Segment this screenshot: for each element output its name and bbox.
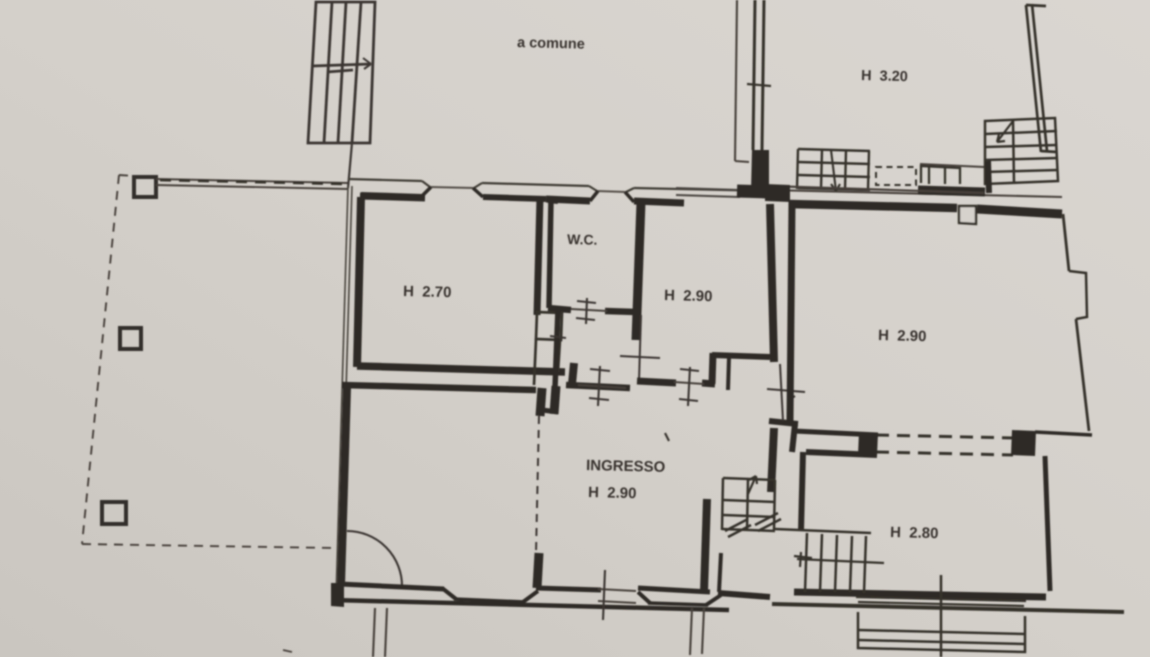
svg-text:H 2.90: H 2.90	[588, 484, 637, 502]
svg-text:H 2.70: H 2.70	[403, 283, 452, 301]
svg-text:H 2.90: H 2.90	[664, 287, 713, 305]
svg-text:H 2.80: H 2.80	[890, 524, 939, 542]
svg-text:H 2.90: H 2.90	[878, 327, 927, 345]
svg-text:INGRESSO: INGRESSO	[586, 457, 666, 476]
svg-text:a comune: a comune	[517, 35, 585, 53]
svg-text:H 3.20: H 3.20	[861, 68, 908, 85]
svg-text:W.C.: W.C.	[567, 231, 598, 248]
